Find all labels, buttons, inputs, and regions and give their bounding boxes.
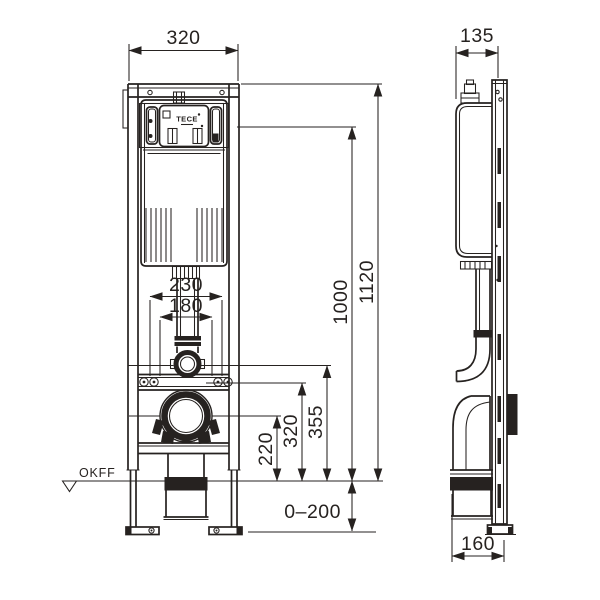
clamp-dot-bottom — [149, 134, 153, 138]
socket-seal-band-side — [450, 477, 493, 491]
dimension-outlet-height: 220 — [255, 416, 277, 481]
bolt-1-dot — [143, 381, 146, 384]
dim-label-flush-bend-height: 355 — [305, 405, 327, 439]
foot-block-right — [237, 528, 242, 535]
dimension-base-depth: 160 — [452, 494, 504, 562]
coupling-band-1 — [175, 336, 202, 341]
dim-label-outlet-height: 220 — [255, 432, 277, 466]
brand-logo: TECE — [176, 115, 198, 124]
rail-dot-2 — [498, 272, 500, 274]
panel-dot-2 — [201, 125, 203, 127]
flush-pipe-side — [457, 269, 493, 382]
panel-dot-1 — [198, 113, 200, 115]
base-band-ticks — [465, 262, 485, 270]
cistern-side-outline — [456, 103, 492, 257]
pipe-coupling-side — [474, 330, 493, 338]
wall-bracket — [507, 394, 518, 435]
dim-label-frame-depth: 135 — [460, 25, 494, 47]
rail-hole-1 — [496, 90, 499, 93]
fill-valve-bolt — [465, 84, 476, 94]
technical-drawing: OKFF — [0, 0, 600, 600]
foot-bolt-right-dot — [216, 530, 218, 532]
panel-window — [163, 111, 170, 118]
dimension-actuator-height: 1000 — [330, 127, 352, 481]
foot-block-left — [127, 528, 132, 535]
bolt-2-dot — [153, 381, 156, 384]
rail-slot-2 — [498, 202, 502, 228]
lower-crossbar-edges — [138, 443, 229, 454]
dimension-frame-width: 320 — [129, 27, 238, 81]
cistern-side-inner — [460, 107, 493, 254]
side-view — [450, 80, 518, 535]
dimension-frame-height: 1120 — [356, 84, 378, 481]
dim-label-base-depth: 160 — [461, 533, 495, 555]
drain-elbow-inner — [466, 402, 490, 470]
actuator-box: TECE — [140, 92, 229, 154]
coupling-band-2 — [175, 342, 202, 346]
rail-foot-block-right — [508, 527, 513, 534]
latch-block — [213, 134, 219, 143]
outlet-seal-ring — [165, 395, 208, 438]
pipe-side-lower — [476, 338, 490, 350]
rail-dot-1 — [495, 245, 497, 247]
foot-bolt-left-dot — [151, 530, 153, 532]
box-flange-lines — [143, 150, 225, 154]
dimension-fixing-spacing-outer: 230 — [150, 274, 222, 376]
dimension-flush-bend-height: 355 — [305, 366, 327, 482]
flush-elbow — [457, 349, 491, 382]
dim-label-actuator-height: 1000 — [330, 279, 352, 324]
fixing-bolts — [140, 378, 232, 386]
outlet-bend — [152, 390, 220, 444]
rail-slot-5 — [498, 396, 502, 422]
dim-label-frame-width: 320 — [166, 27, 200, 49]
drain-elbow-outline — [453, 396, 490, 470]
drain-bend-side — [450, 396, 493, 519]
outlet-ear-left — [152, 419, 164, 435]
rail-slot-1 — [498, 148, 502, 174]
dim-label-foot-adjustment: 0–200 — [284, 501, 341, 523]
pipe-side-walls — [476, 269, 490, 330]
crossbar-hole-left — [148, 90, 152, 94]
clamp-dot-top — [149, 119, 153, 123]
socket-seal-band — [165, 477, 208, 491]
outlet-ear-right — [208, 419, 220, 435]
outlet-bore — [170, 400, 203, 433]
rail-slot-6 — [498, 438, 502, 464]
rail-hole-2 — [499, 98, 502, 101]
cistern-side — [456, 80, 492, 269]
crossbar-hole-right — [220, 90, 224, 94]
bend-clamp-left — [161, 431, 175, 444]
flush-bend-ring — [176, 353, 199, 376]
datum-triangle-icon — [63, 481, 77, 492]
rail-dot-3 — [496, 279, 498, 281]
rail-slot-4 — [498, 334, 502, 360]
clip-lines — [173, 129, 198, 144]
cistern-ribs — [146, 208, 222, 262]
dim-label-fixing-height: 320 — [280, 414, 302, 448]
dim-label-frame-height: 1120 — [356, 260, 378, 304]
ext-lines — [129, 44, 238, 81]
dimension-foot-adjustment: 0–200 — [284, 481, 352, 531]
socket-body — [166, 491, 206, 518]
bend-clamp-right — [197, 431, 211, 444]
socket-neck — [168, 454, 204, 478]
floor-datum-label: OKFF — [79, 466, 116, 480]
rail-slot-7 — [498, 484, 502, 508]
dim-label-fixing-outer: 230 — [169, 274, 203, 296]
flush-bend-bore — [181, 357, 195, 371]
dim-label-fixing-inner: 180 — [169, 295, 203, 317]
socket-body-side — [451, 491, 493, 517]
rail-slot-3 — [498, 256, 502, 282]
dimension-fixing-height: 320 — [280, 383, 302, 481]
